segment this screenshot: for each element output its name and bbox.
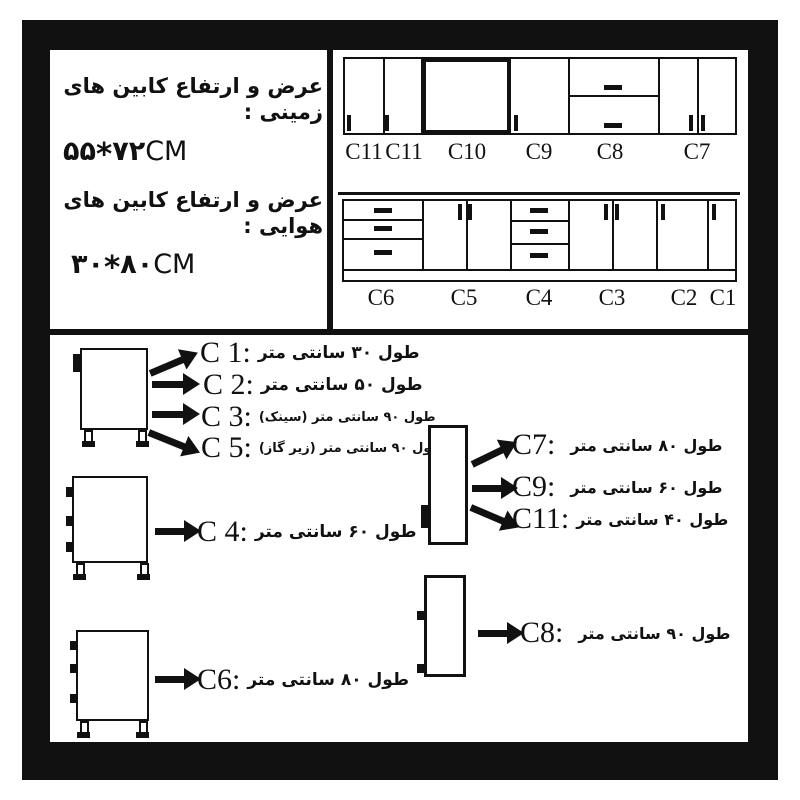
legend-text: طول ۳۰ سانتی متر — [258, 343, 420, 363]
cabinet-spec-sheet: { "colors": {"ink": "#111111", "paper": … — [0, 0, 800, 800]
door-handle — [661, 204, 665, 220]
drawer-handle — [66, 487, 73, 497]
cabinet-c10-glass-box — [422, 58, 511, 134]
door-divider — [612, 201, 614, 269]
drawer-divider — [510, 220, 568, 222]
unit-cm: CM — [153, 249, 195, 280]
floor-cabinet-size-value: ۵۵*۷۲CM — [63, 136, 187, 172]
drawer-divider — [510, 243, 568, 245]
cabinet-foot — [77, 732, 90, 738]
floor-height: ۷۲ — [112, 136, 145, 167]
legend-code: C6: — [197, 663, 240, 697]
legend-code: C 1: — [200, 336, 251, 370]
door-handle — [385, 115, 389, 131]
drawer-cabinet-side-view — [76, 630, 149, 721]
cabinet-foot — [137, 574, 150, 580]
cabinet-divider — [707, 201, 709, 269]
wall-cabinet-label: C10 — [448, 139, 486, 165]
wall-cabinet-side-view — [428, 425, 468, 545]
legend-text: طول ۹۰ سانتی متر (سینک) — [259, 410, 436, 425]
door-handle — [712, 204, 716, 220]
floor-cabinet-size-title: عرض و ارتفاع کابین های زمینی : — [55, 73, 323, 126]
toe-kick-line — [344, 269, 735, 271]
drawer-handle — [530, 229, 548, 234]
drawer-handle — [70, 641, 77, 650]
unit-cm: CM — [145, 136, 187, 167]
floor-cabinet-label: C4 — [526, 285, 553, 311]
door-handle — [701, 115, 705, 131]
cabinet-foot — [136, 441, 149, 447]
cabinet-divider — [568, 201, 570, 269]
legend-row-c5: C 5: طول ۹۰ سانتی متر (زیر گاز) — [201, 431, 444, 465]
legend-code: C9: — [512, 470, 555, 504]
wall-cabinet-size-value: ۳۰*۸۰CM — [71, 249, 195, 285]
drawer-handle — [374, 208, 392, 213]
floor-depth: ۵۵ — [63, 136, 96, 167]
door-handle — [73, 354, 81, 372]
cabinet-divider — [510, 201, 512, 269]
wall-cabinets-elevation — [343, 57, 737, 135]
base-cabinet-side-view — [80, 348, 148, 430]
legend-code: C 4: — [197, 515, 248, 549]
door-handle — [417, 611, 425, 620]
drawer-handle — [70, 694, 77, 703]
floor-cabinet-label: C6 — [368, 285, 395, 311]
legend-row-c8: C8: طول ۹۰ سانتی متر — [520, 616, 730, 650]
drawer-divider — [344, 219, 422, 221]
horizontal-divider — [50, 329, 748, 335]
cabinet-divider — [422, 201, 424, 269]
door-handle — [604, 204, 608, 220]
legend-code: C7: — [512, 428, 555, 462]
door-handle — [615, 204, 619, 220]
floor-cabinets-elevation — [342, 199, 737, 282]
door-handle — [347, 115, 351, 131]
drawer-handle — [374, 226, 392, 231]
legend-text: طول ۶۰ سانتی متر — [255, 522, 417, 542]
door-divider — [658, 59, 660, 133]
legend-row-c4: C 4: طول ۶۰ سانتی متر — [197, 515, 416, 549]
legend-code: C 3: — [201, 400, 252, 434]
wall-height: ۸۰ — [120, 249, 153, 280]
legend-code: C8: — [520, 616, 563, 650]
floor-cabinet-label: C5 — [451, 285, 478, 311]
legend-text: طول ۹۰ سانتی متر — [578, 624, 730, 643]
flip-door-handle — [604, 85, 622, 90]
legend-code: C11: — [512, 502, 569, 536]
floor-cabinet-label: C2 — [671, 285, 698, 311]
door-handle — [468, 204, 472, 220]
drawer-cabinet-side-view — [72, 476, 148, 563]
floor-cabinet-label: C1 — [710, 285, 737, 311]
legend-text: طول ۶۰ سانتی متر — [570, 478, 722, 497]
wall-cabinet-side-view — [424, 575, 466, 677]
legend-text: طول ۹۰ سانتی متر (زیر گاز) — [259, 441, 444, 456]
flip-door-divider — [570, 95, 658, 97]
multiply-star-icon: * — [104, 249, 120, 285]
legend-row-c3: C 3: طول ۹۰ سانتی متر (سینک) — [201, 400, 436, 434]
drawer-handle — [70, 664, 77, 673]
wall-cabinet-label: C8 — [597, 139, 624, 165]
legend-row-c7: C7: طول ۸۰ سانتی متر — [512, 428, 722, 462]
drawer-handle — [374, 250, 392, 255]
door-handle — [421, 505, 429, 528]
vertical-divider — [327, 50, 333, 335]
drawer-handle — [66, 516, 73, 526]
door-handle — [458, 204, 462, 220]
wall-cabinet-size-title: عرض و ارتفاع کابین های هوایی : — [45, 187, 323, 240]
door-handle — [417, 664, 425, 673]
legend-text: طول ۸۰ سانتی متر — [570, 436, 722, 455]
drawer-handle — [66, 542, 73, 552]
wall-cabinet-label: C11 — [345, 139, 383, 165]
countertop-line — [338, 192, 740, 195]
wall-cabinet-label: C9 — [526, 139, 553, 165]
legend-text: طول ۴۰ سانتی متر — [576, 510, 728, 529]
door-handle — [689, 115, 693, 131]
multiply-star-icon: * — [96, 136, 112, 172]
door-divider — [697, 59, 699, 133]
wall-depth: ۳۰ — [71, 249, 104, 280]
legend-row-c6: C6: طول ۸۰ سانتی متر — [197, 663, 409, 697]
drawer-divider — [344, 238, 422, 240]
legend-code: C 5: — [201, 431, 252, 465]
door-handle — [514, 115, 518, 131]
wall-cabinet-label: C7 — [684, 139, 711, 165]
wall-cabinet-label: C11 — [385, 139, 423, 165]
legend-text: طول ۸۰ سانتی متر — [247, 670, 409, 690]
cabinet-foot — [82, 441, 95, 447]
cabinet-foot — [73, 574, 86, 580]
legend-row-c2: C 2: طول ۵۰ سانتی متر — [203, 368, 422, 402]
drawer-handle — [530, 208, 548, 213]
cabinet-foot — [136, 732, 149, 738]
legend-code: C 2: — [203, 368, 254, 402]
flip-door-handle — [604, 123, 622, 128]
legend-row-c9: C9: طول ۶۰ سانتی متر — [512, 470, 722, 504]
legend-row-c11: C11: طول ۴۰ سانتی متر — [512, 502, 728, 536]
cabinet-divider — [656, 201, 658, 269]
legend-text: طول ۵۰ سانتی متر — [261, 375, 423, 395]
floor-cabinet-label: C3 — [599, 285, 626, 311]
legend-row-c1: C 1: طول ۳۰ سانتی متر — [200, 336, 419, 370]
drawer-handle — [530, 253, 548, 258]
